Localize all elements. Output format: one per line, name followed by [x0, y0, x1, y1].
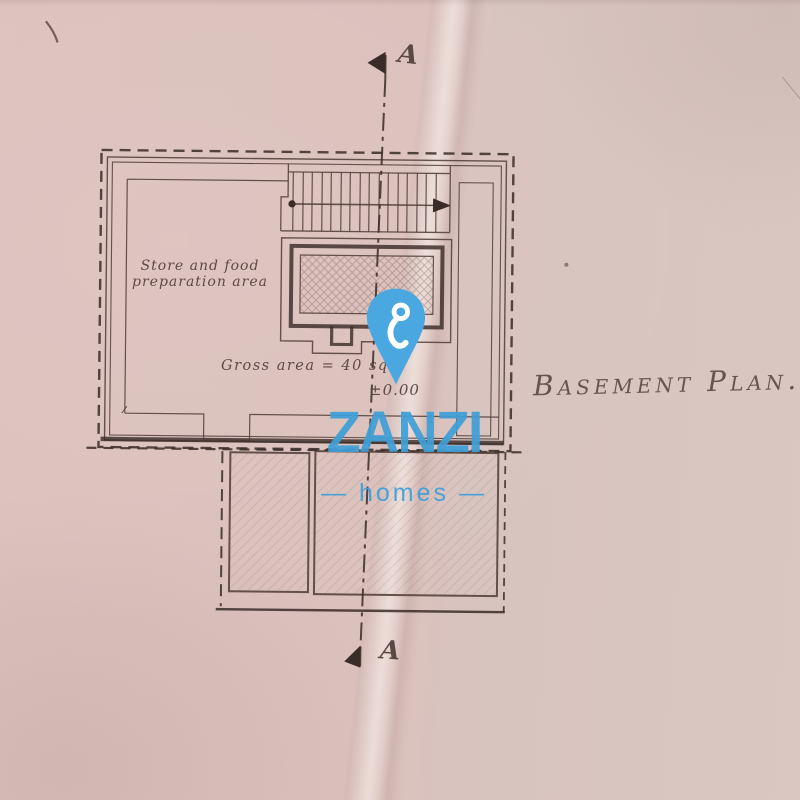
room-label: Store and food preparation area — [118, 258, 282, 290]
scanned-floorplan-photo: Store and food preparation area Gross ar… — [0, 0, 800, 800]
section-flag-bottom-icon — [344, 645, 360, 667]
level-label: ±0.00 — [369, 381, 420, 399]
staircase — [281, 164, 452, 233]
gross-area-label: Gross area = 40 sqm — [221, 358, 404, 374]
room-label-line1: Store and food — [118, 258, 282, 274]
water-tank — [280, 238, 451, 355]
section-marker-a-bottom: A — [379, 635, 401, 666]
floor-plan-drawing — [0, 0, 800, 800]
yard-block — [216, 449, 507, 612]
section-marker-a-top: A — [396, 39, 420, 71]
handwritten-title: Basement Plan. — [533, 363, 800, 403]
right-corridor — [457, 183, 494, 436]
section-flag-top-icon — [367, 52, 385, 74]
room-label-line2: preparation area — [118, 274, 282, 290]
